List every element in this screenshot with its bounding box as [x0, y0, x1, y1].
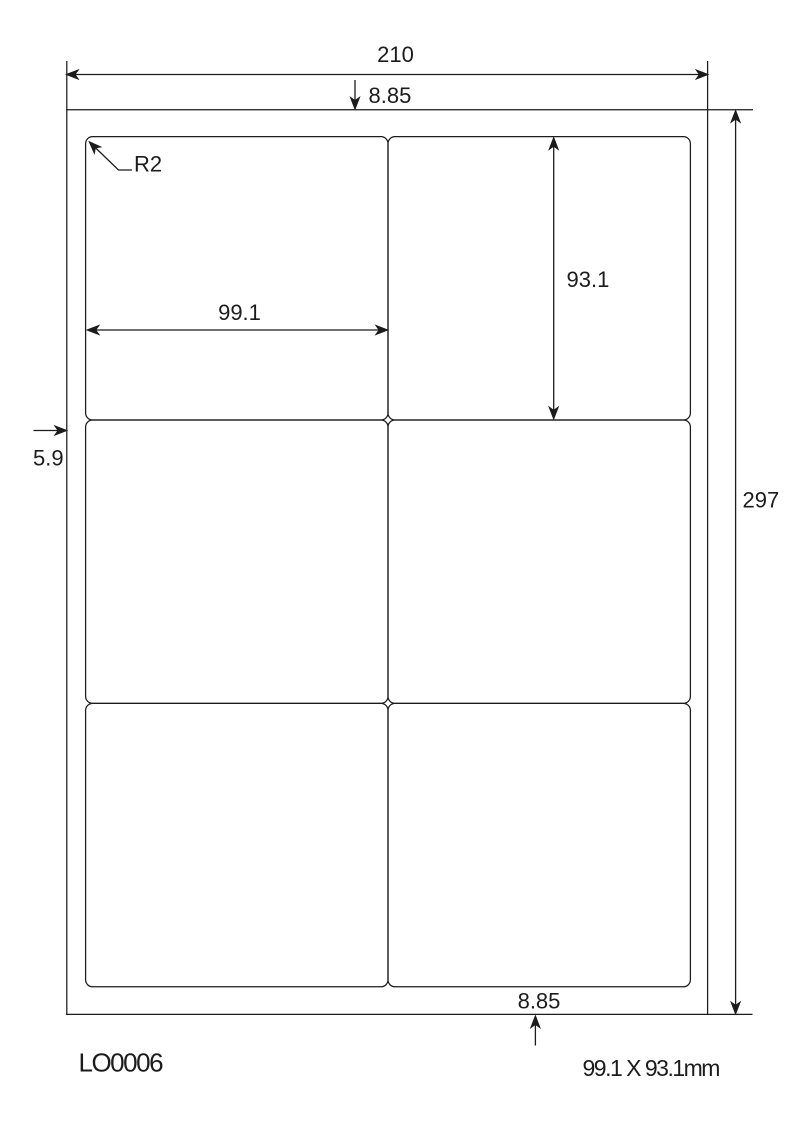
svg-text:LO0006: LO0006 [79, 1048, 164, 1078]
svg-text:210: 210 [377, 42, 414, 67]
svg-text:R2: R2 [134, 152, 162, 177]
svg-text:99.1 X 93.1mm: 99.1 X 93.1mm [583, 1055, 720, 1081]
svg-text:8.85: 8.85 [369, 83, 412, 108]
svg-text:99.1: 99.1 [218, 300, 261, 325]
svg-text:297: 297 [743, 488, 780, 513]
svg-text:5.9: 5.9 [33, 446, 64, 471]
svg-text:8.85: 8.85 [518, 989, 561, 1014]
svg-text:93.1: 93.1 [567, 267, 610, 292]
